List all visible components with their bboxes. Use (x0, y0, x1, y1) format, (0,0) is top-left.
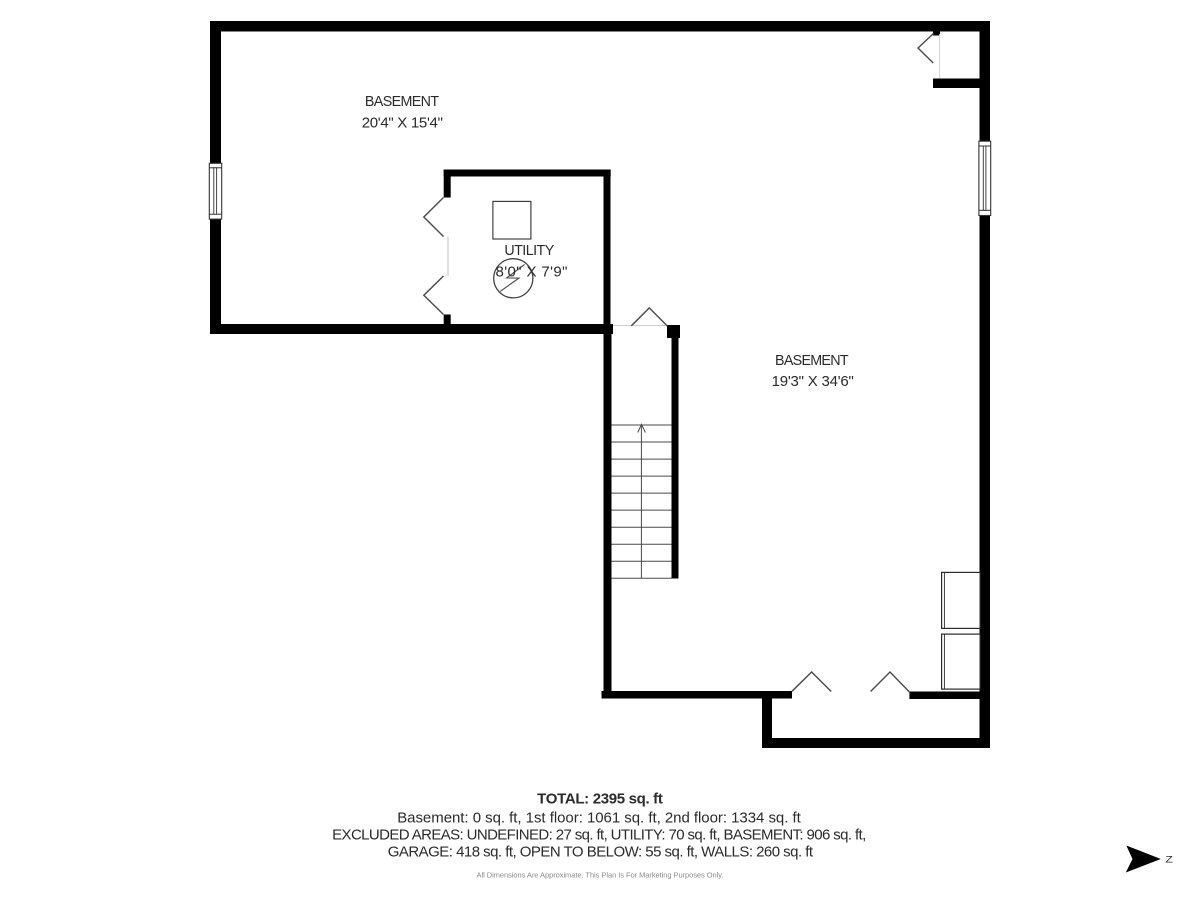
svg-text:EXCLUDED AREAS: UNDEFINED: 27: EXCLUDED AREAS: UNDEFINED: 27 sq. ft, UT… (332, 827, 866, 844)
svg-text:19'3" X 34'6": 19'3" X 34'6" (772, 373, 854, 390)
svg-text:Z: Z (1165, 855, 1173, 866)
svg-text:GARAGE: 418 sq. ft, OPEN TO BE: GARAGE: 418 sq. ft, OPEN TO BELOW: 55 sq… (388, 844, 814, 861)
svg-text:All Dimensions Are Approximate: All Dimensions Are Approximate. This Pla… (477, 871, 724, 880)
svg-text:UTILITY: UTILITY (504, 243, 554, 259)
svg-text:20'4" X 15'4": 20'4" X 15'4" (362, 114, 443, 131)
svg-text:8'0" X 7'9": 8'0" X 7'9" (496, 263, 568, 280)
svg-text:Basement: 0 sq. ft, 1st floor:: Basement: 0 sq. ft, 1st floor: 1061 sq. … (397, 810, 801, 827)
svg-text:BASEMENT: BASEMENT (775, 353, 849, 369)
svg-text:BASEMENT: BASEMENT (365, 94, 439, 110)
svg-text:TOTAL: 2395 sq. ft: TOTAL: 2395 sq. ft (537, 791, 663, 808)
